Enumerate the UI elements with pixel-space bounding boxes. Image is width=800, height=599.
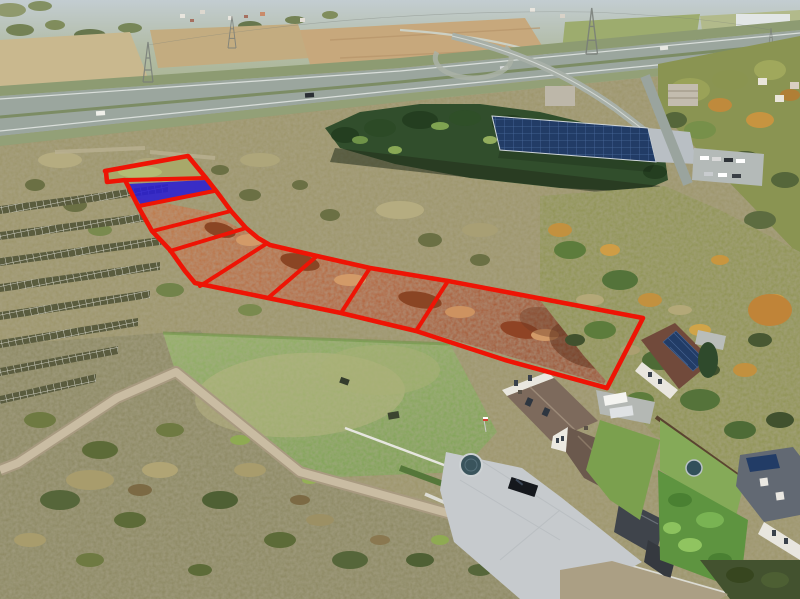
conifer-tree bbox=[698, 342, 718, 378]
plot-divider-1 bbox=[125, 178, 206, 180]
scene bbox=[0, 0, 800, 599]
aerial-photo-canvas bbox=[0, 0, 800, 599]
orange-tree bbox=[748, 294, 792, 326]
parking-lot bbox=[692, 148, 764, 186]
trampoline bbox=[460, 454, 482, 476]
trampoline-neighbor bbox=[686, 460, 702, 476]
dormer bbox=[775, 491, 784, 500]
flag bbox=[483, 419, 488, 421]
dormer bbox=[759, 477, 768, 486]
